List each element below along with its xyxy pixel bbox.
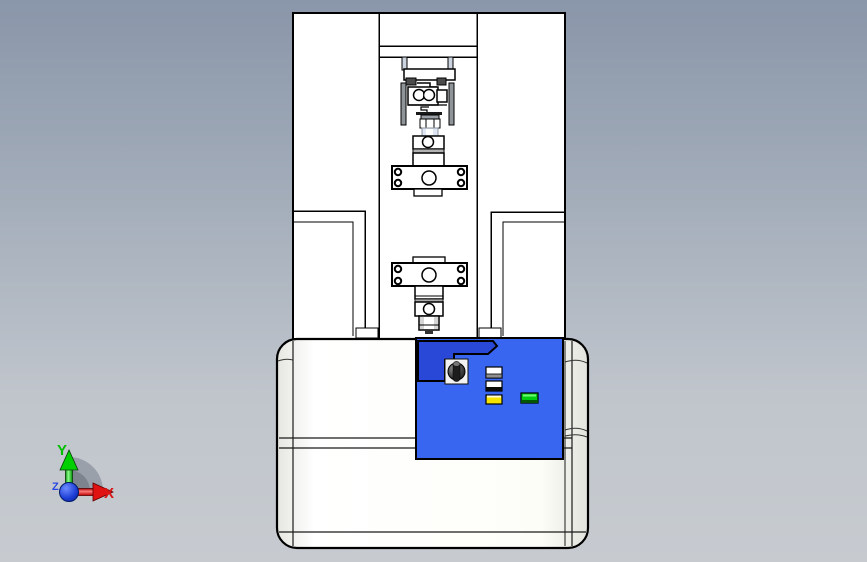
hex-shade-right [434,317,438,329]
spindle-hex-nut [420,119,440,128]
load-cell-lower-block [413,153,444,166]
flange-bolt [395,180,401,186]
cad-viewport[interactable]: Z Y X [0,0,867,562]
button-white-2[interactable] [486,381,502,391]
button-green[interactable] [521,393,538,403]
right-hanger-rod [448,57,453,70]
left-hanger-rod [402,57,407,70]
z-axis-label: Z [52,481,59,493]
tower-top-crossbeam [379,46,477,57]
button-white-1-base [486,374,502,378]
button-white-2-base [486,387,502,391]
upper-flange-bore [422,171,436,185]
left-guide-column [401,83,406,125]
left-column-foot [356,328,378,338]
flange-bolt [458,169,464,175]
button-green-highlight [523,395,536,397]
flange-bolt [458,266,464,272]
button-green-base [521,400,538,403]
coupling-highlight [426,129,433,135]
spindle-collar [421,115,439,119]
right-jaw-block [437,78,446,85]
lower-flange-bore [422,268,436,282]
load-cell-bore [423,137,434,148]
button-yellow-highlight [487,396,501,398]
flange-bolt [395,169,401,175]
hex-shade-left [420,317,424,329]
button-white-1[interactable] [486,367,502,378]
knob-handle-cap [453,362,459,366]
x-axis-label: X [104,485,114,502]
button-yellow[interactable] [486,395,502,404]
specimen-eye-right-fill [425,91,433,99]
y-axis-label: Y [57,442,67,459]
upper-load-cell[interactable] [413,136,444,166]
grip-side-bracket [437,90,447,102]
control-panel[interactable] [416,338,563,459]
orientation-triad: Z Y X [52,442,114,502]
flange-bolt [395,266,401,272]
flange-bolt [395,278,401,284]
flange-bolt [458,180,464,186]
lower-stub [425,330,433,334]
right-guide-column [449,83,454,125]
lower-adapter-block [415,286,443,299]
lower-cell-bore [424,304,435,315]
origin-sphere-icon [60,483,79,502]
right-column-foot [479,328,501,338]
specimen-eye-left-fill [415,91,423,99]
upper-flange-stem [414,189,442,196]
flange-bolt [458,278,464,284]
left-jaw-block [406,78,416,85]
